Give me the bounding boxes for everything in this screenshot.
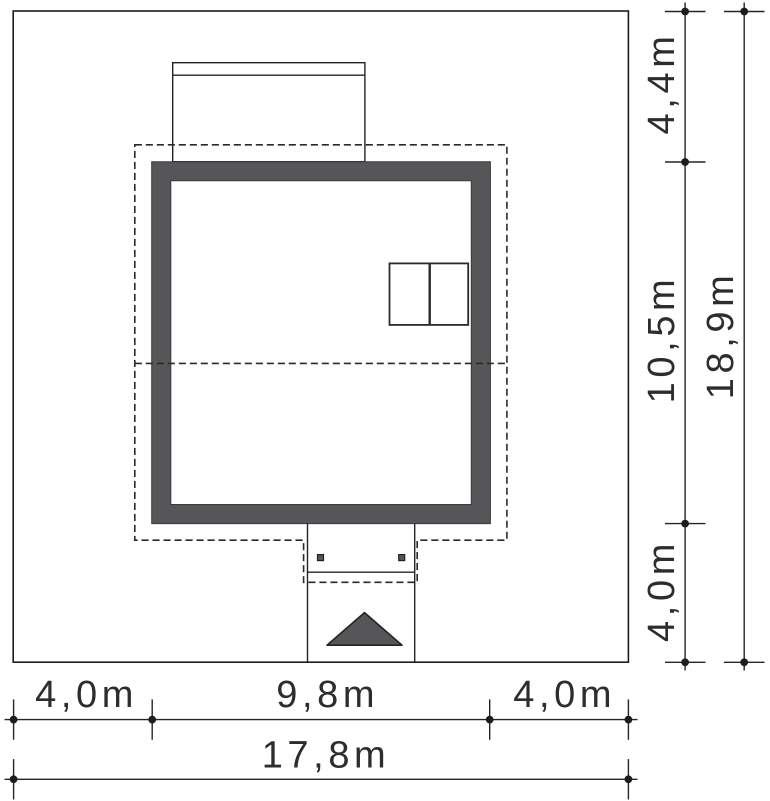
svg-text:4,4m: 4,4m xyxy=(641,32,683,135)
svg-text:4,0m: 4,0m xyxy=(513,674,616,716)
svg-text:4,0m: 4,0m xyxy=(35,674,138,716)
svg-text:9,8m: 9,8m xyxy=(276,674,379,716)
svg-text:17,8m: 17,8m xyxy=(262,735,391,777)
svg-text:4,0m: 4,0m xyxy=(641,539,683,642)
svg-text:18,9m: 18,9m xyxy=(700,271,742,400)
svg-text:10,5m: 10,5m xyxy=(641,275,683,404)
